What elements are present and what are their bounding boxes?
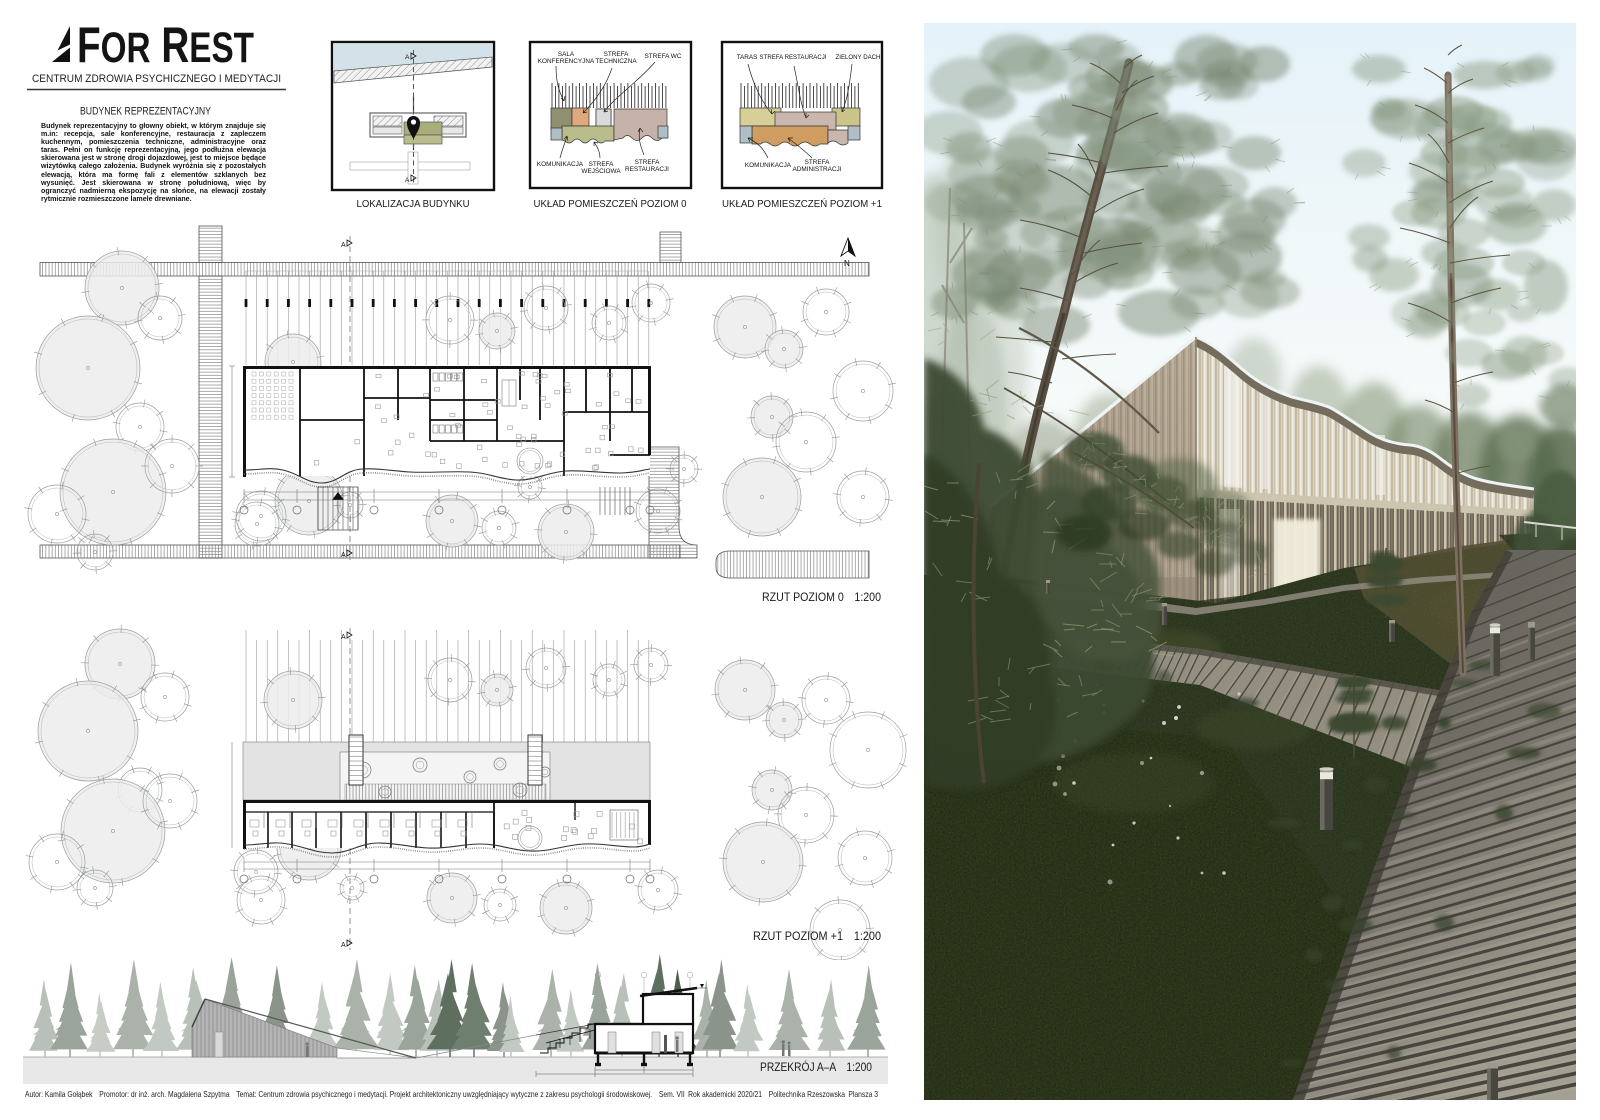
svg-text:STREFA: STREFA bbox=[589, 161, 615, 168]
svg-text:KOMUNIKACJA: KOMUNIKACJA bbox=[537, 161, 584, 168]
svg-text:A: A bbox=[341, 942, 346, 949]
svg-text:STREFA RESTAURACJI: STREFA RESTAURACJI bbox=[760, 54, 827, 61]
svg-text:KONFERENCYJNA: KONFERENCYJNA bbox=[538, 58, 595, 65]
svg-text:BUDYNEK REPREZENTACYJNY: BUDYNEK REPREZENTACYJNY bbox=[80, 106, 211, 118]
svg-text:ZIELONY DACH: ZIELONY DACH bbox=[836, 54, 881, 61]
svg-text:Autor: Kamila Gołąbek Promoto: Autor: Kamila Gołąbek Promotor: dr inż. … bbox=[25, 1090, 878, 1099]
svg-text:RZUT POZIOM 0 1:200: RZUT POZIOM 0 1:200 bbox=[762, 592, 881, 604]
svg-text:A: A bbox=[405, 177, 410, 184]
svg-text:ADMINISTRACJI: ADMINISTRACJI bbox=[793, 166, 842, 173]
svg-text:WEJŚCIOWA: WEJŚCIOWA bbox=[581, 166, 621, 175]
svg-text:RESTAURACJI: RESTAURACJI bbox=[625, 166, 669, 173]
svg-text:TARAS: TARAS bbox=[737, 54, 758, 61]
svg-text:STREFA: STREFA bbox=[805, 159, 831, 166]
svg-text:PRZEKRÓJ A–A 1:200: PRZEKRÓJ A–A 1:200 bbox=[760, 1061, 872, 1074]
svg-text:UKŁAD POMIESZCZEŃ POZIOM +1: UKŁAD POMIESZCZEŃ POZIOM +1 bbox=[722, 197, 882, 210]
svg-text:A: A bbox=[405, 54, 410, 61]
svg-text:CENTRUM ZDROWIA PSYCHICZNEGO I: CENTRUM ZDROWIA PSYCHICZNEGO I MEDYTACJI bbox=[32, 73, 281, 85]
svg-text:A: A bbox=[341, 552, 346, 559]
svg-text:STREFA WC: STREFA WC bbox=[645, 53, 682, 60]
svg-text:A: A bbox=[341, 634, 346, 641]
svg-text:SALA: SALA bbox=[558, 51, 575, 58]
svg-text:FOR REST: FOR REST bbox=[77, 17, 254, 73]
svg-text:TECHNICZNA: TECHNICZNA bbox=[595, 58, 637, 65]
svg-text:KOMUNIKACJA: KOMUNIKACJA bbox=[745, 162, 792, 169]
svg-text:LOKALIZACJA BUDYNKU: LOKALIZACJA BUDYNKU bbox=[357, 198, 470, 210]
svg-text:STREFA: STREFA bbox=[604, 51, 630, 58]
svg-text:A: A bbox=[341, 242, 346, 249]
svg-text:UKŁAD POMIESZCZEŃ POZIOM 0: UKŁAD POMIESZCZEŃ POZIOM 0 bbox=[534, 197, 687, 210]
svg-text:N: N bbox=[844, 259, 850, 268]
svg-text:STREFA: STREFA bbox=[635, 159, 661, 166]
svg-text:RZUT POZIOM +1 1:200: RZUT POZIOM +1 1:200 bbox=[753, 931, 881, 943]
